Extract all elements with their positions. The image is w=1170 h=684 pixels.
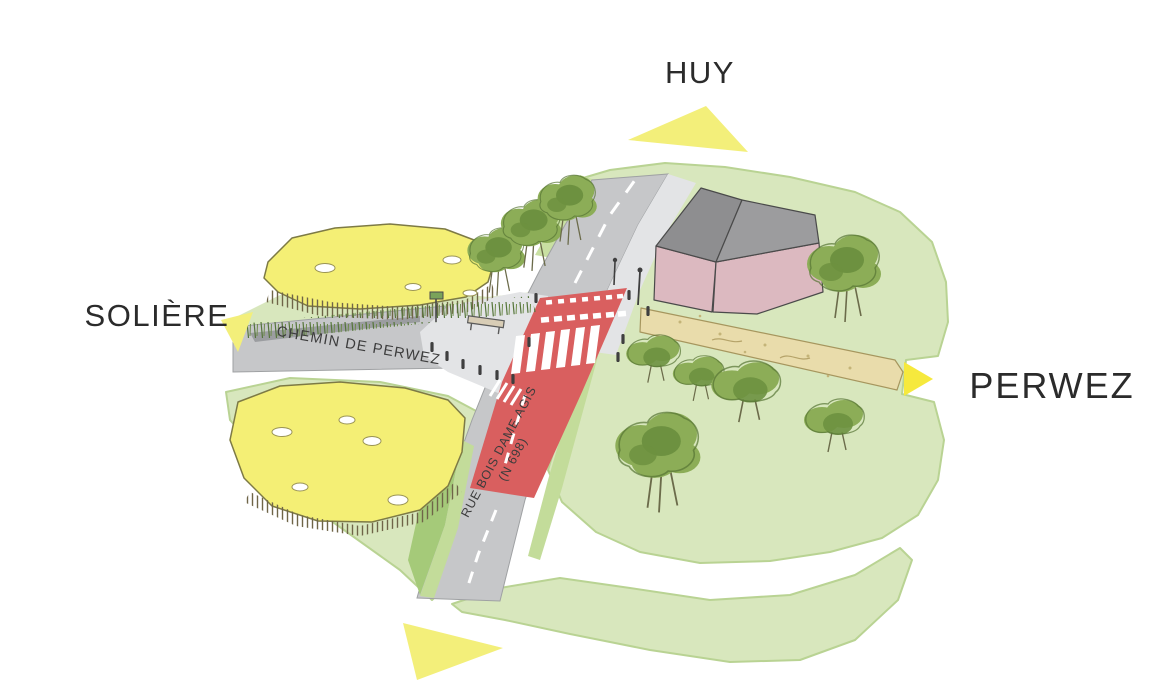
label-huy: HUY <box>665 55 735 90</box>
direction-arrow-perwez-icon <box>904 362 933 396</box>
site-plan: HUY SOLIÈRE PERWEZ CHEMIN DE PERWEZ RUE … <box>0 0 1170 684</box>
label-soliere: SOLIÈRE <box>85 298 230 333</box>
bollard <box>621 334 624 344</box>
bollard <box>616 352 619 362</box>
bollard <box>478 365 481 375</box>
label-perwez: PERWEZ <box>969 365 1134 406</box>
bollard <box>495 370 498 380</box>
site-plan-illustration: HUY SOLIÈRE PERWEZ CHEMIN DE PERWEZ RUE … <box>0 0 1170 684</box>
bollard <box>511 374 514 384</box>
bollard <box>461 359 464 369</box>
direction-arrow-south-icon <box>403 623 503 680</box>
bollard <box>527 337 530 347</box>
bollard <box>534 293 537 303</box>
bollard <box>627 290 630 300</box>
meadow-bottom <box>452 548 912 662</box>
bollard <box>445 351 448 361</box>
direction-arrow-huy-icon <box>628 106 748 152</box>
bollard <box>646 306 649 316</box>
